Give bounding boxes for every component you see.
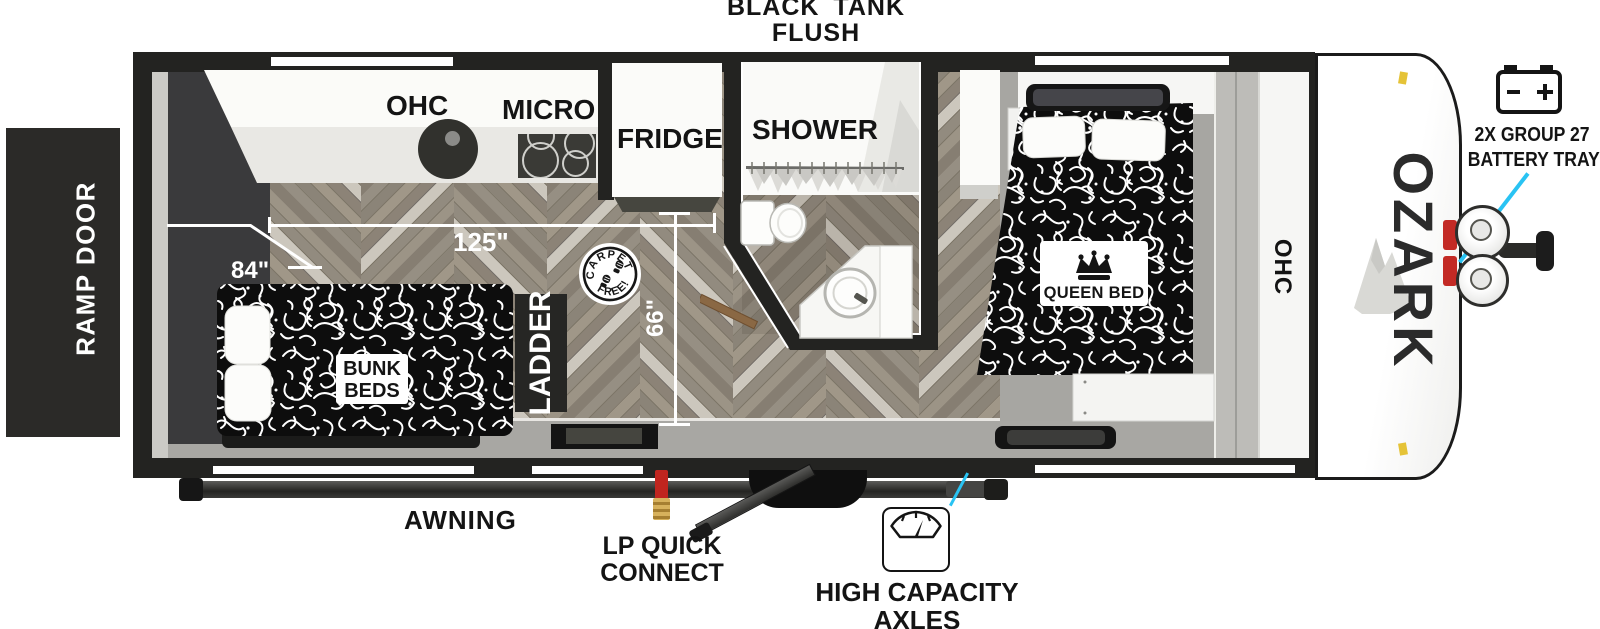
svg-text:QUEEN BED: QUEEN BED <box>1044 284 1145 302</box>
svg-text:BUNK: BUNK <box>343 358 401 380</box>
svg-text:BEDS: BEDS <box>344 380 400 402</box>
